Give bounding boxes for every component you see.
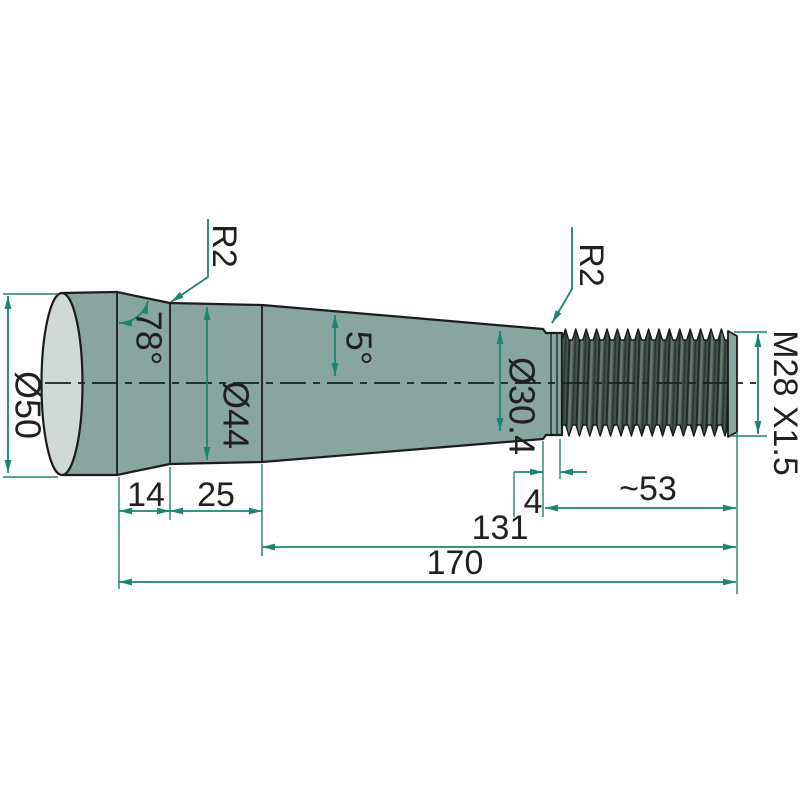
dim-label-radius-left: R2 bbox=[205, 224, 243, 267]
leader-r2-left bbox=[171, 219, 208, 302]
dim-label-angle-78: 78° bbox=[128, 311, 169, 365]
dim-label-diameter-44: Ø44 bbox=[215, 381, 256, 449]
dim-label-angle-5: 5° bbox=[338, 331, 379, 365]
technical-drawing-canvas: Ø50 78° R2 Ø44 5° Ø30.4 R2 M28 X1.5 14 2… bbox=[0, 0, 800, 800]
dim-label-14: 14 bbox=[127, 476, 165, 514]
dim-label-53: ~53 bbox=[619, 470, 677, 508]
dim-label-diameter-30-4: Ø30.4 bbox=[501, 357, 542, 455]
thread-end-cap bbox=[728, 331, 737, 437]
technical-drawing-page: Ø50 78° R2 Ø44 5° Ø30.4 R2 M28 X1.5 14 2… bbox=[0, 0, 800, 800]
dim-label-radius-right: R2 bbox=[572, 243, 610, 286]
dim-label-diameter-50: Ø50 bbox=[7, 371, 48, 439]
dim-label-thread-spec: M28 X1.5 bbox=[766, 330, 800, 476]
dim-label-25: 25 bbox=[197, 476, 235, 514]
leader-r2-right bbox=[552, 227, 572, 323]
dim-label-131: 131 bbox=[472, 509, 529, 547]
dim-label-170: 170 bbox=[427, 544, 484, 582]
